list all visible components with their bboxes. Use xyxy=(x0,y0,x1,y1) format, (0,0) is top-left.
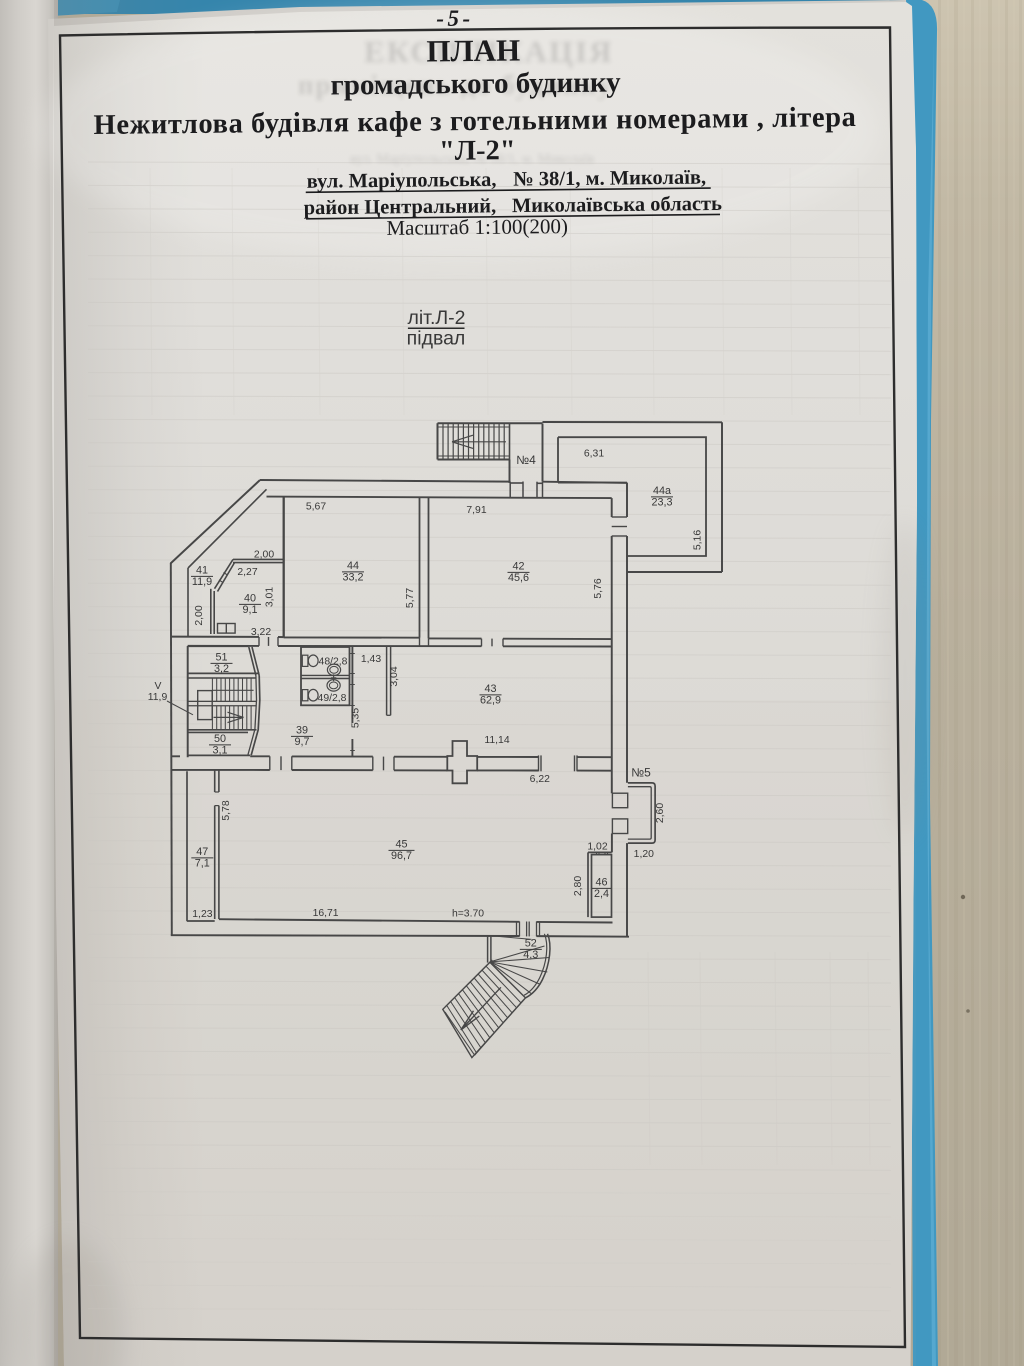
svg-text:4,3: 4,3 xyxy=(523,949,538,961)
svg-text:№5: №5 xyxy=(631,766,651,780)
svg-text:3,04: 3,04 xyxy=(389,666,400,686)
svg-text:5,78: 5,78 xyxy=(221,800,232,820)
svg-text:42: 42 xyxy=(512,561,524,573)
svg-text:43: 43 xyxy=(484,683,496,695)
svg-text:1,20: 1,20 xyxy=(634,849,654,860)
svg-text:2,60: 2,60 xyxy=(655,803,666,823)
svg-text:1,02: 1,02 xyxy=(587,841,607,852)
svg-text:47: 47 xyxy=(196,846,208,858)
svg-text:2,00: 2,00 xyxy=(194,605,205,625)
svg-text:3,2: 3,2 xyxy=(214,663,229,675)
svg-text:7,1: 7,1 xyxy=(195,857,210,869)
svg-text:1,23: 1,23 xyxy=(192,909,212,920)
svg-text:2,4: 2,4 xyxy=(594,888,609,900)
svg-text:5,77: 5,77 xyxy=(405,588,416,608)
svg-text:5,76: 5,76 xyxy=(593,578,604,598)
svg-text:96,7: 96,7 xyxy=(391,850,412,862)
svg-text:2,00: 2,00 xyxy=(254,550,274,561)
svg-text:5,67: 5,67 xyxy=(306,502,326,513)
svg-text:40: 40 xyxy=(244,593,256,605)
svg-text:Масштаб 1:100(200): Масштаб 1:100(200) xyxy=(386,214,568,240)
svg-text:ПЛАН: ПЛАН xyxy=(426,33,520,69)
svg-text:підвал: підвал xyxy=(407,328,466,350)
svg-text:3,22: 3,22 xyxy=(251,627,271,638)
svg-text:45,6: 45,6 xyxy=(508,572,529,584)
svg-text:громадського будинку: громадського будинку xyxy=(330,66,621,101)
svg-text:h=3.70: h=3.70 xyxy=(452,908,484,919)
svg-text:41: 41 xyxy=(196,565,208,577)
svg-text:"Л-2": "Л-2" xyxy=(439,135,516,167)
svg-text:літ.Л-2: літ.Л-2 xyxy=(407,307,465,329)
svg-text:11,9: 11,9 xyxy=(192,576,212,588)
svg-text:V: V xyxy=(155,681,162,692)
svg-text:49/2,8: 49/2,8 xyxy=(318,693,347,704)
svg-text:вул. Маріупольська,: вул. Маріупольська, xyxy=(307,169,497,193)
svg-text:50: 50 xyxy=(214,733,226,745)
svg-text:11,9: 11,9 xyxy=(148,692,168,703)
svg-text:6,22: 6,22 xyxy=(530,774,550,785)
svg-text:№ 38/1, м. Миколаїв,: № 38/1, м. Миколаїв, xyxy=(513,167,706,191)
svg-text:№4: №4 xyxy=(516,453,536,467)
svg-text:6,31: 6,31 xyxy=(584,449,604,460)
svg-text:52: 52 xyxy=(525,938,537,950)
svg-text:3,1: 3,1 xyxy=(212,744,227,756)
svg-text:62,9: 62,9 xyxy=(480,694,501,706)
svg-text:48/2,8: 48/2,8 xyxy=(319,657,348,668)
svg-text:11,14: 11,14 xyxy=(484,735,509,746)
svg-text:46: 46 xyxy=(595,877,607,889)
svg-text:44: 44 xyxy=(347,560,359,572)
svg-text:33,2: 33,2 xyxy=(342,571,363,583)
svg-text:44а: 44а xyxy=(653,485,671,497)
svg-text:7,91: 7,91 xyxy=(466,505,486,516)
svg-text:51: 51 xyxy=(215,652,227,664)
svg-text:2,80: 2,80 xyxy=(573,876,584,896)
svg-text:2,27: 2,27 xyxy=(237,567,257,578)
svg-text:45: 45 xyxy=(395,839,407,851)
svg-text:9,1: 9,1 xyxy=(242,604,257,616)
svg-text:5,35: 5,35 xyxy=(351,708,362,728)
svg-text:16,71: 16,71 xyxy=(313,908,339,919)
svg-text:-5-: -5- xyxy=(436,6,473,31)
svg-text:1,43: 1,43 xyxy=(361,654,381,665)
svg-text:9,7: 9,7 xyxy=(294,736,309,748)
svg-text:39: 39 xyxy=(296,725,308,737)
svg-text:3,01: 3,01 xyxy=(265,587,276,607)
svg-text:5,16: 5,16 xyxy=(693,530,704,550)
svg-text:23,3: 23,3 xyxy=(651,496,672,508)
